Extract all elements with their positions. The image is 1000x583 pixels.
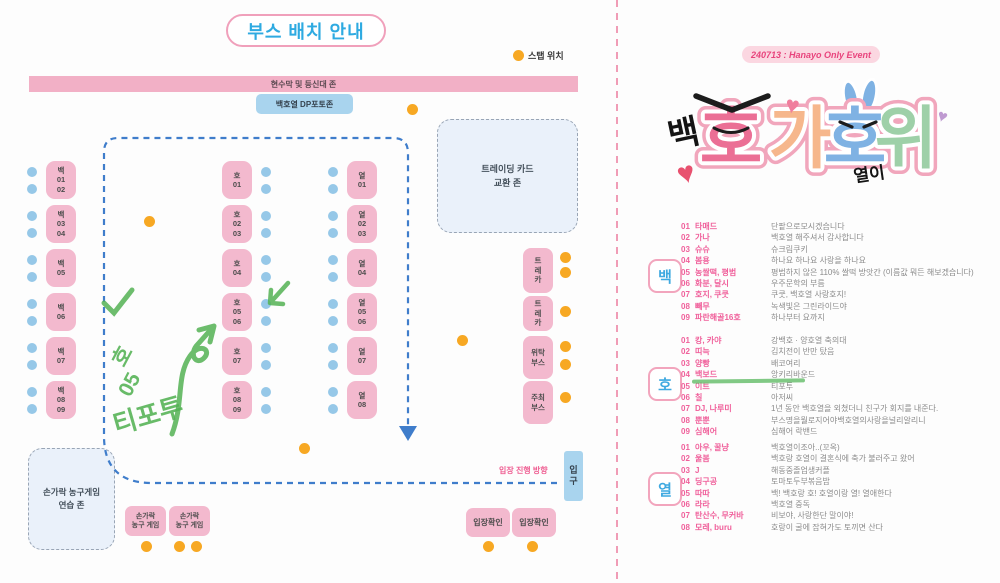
entry-check-booth-2: 입장확인 <box>512 508 556 537</box>
attendee-dots <box>328 343 338 370</box>
booth-box: 백 06 <box>46 293 76 331</box>
logo-outline: 위 <box>875 101 938 177</box>
booth-description: 슈크림쿠키 <box>771 244 808 255</box>
attendee-dots <box>27 255 37 282</box>
staff-dot <box>299 443 310 454</box>
booth-description: 우주문학의 부름 <box>771 278 825 289</box>
attendee-dot <box>328 316 338 326</box>
attendee-dot <box>328 228 338 238</box>
entry-path-arrowhead-icon <box>399 426 417 441</box>
baek-booth-column: 백 01 02백 03 04백 05백 06백 07백 08 09 <box>27 161 76 425</box>
booth-number: 01 <box>681 335 695 346</box>
staff-dot <box>560 252 571 263</box>
ho-booth-column: 호 01호 02 03호 04호 05 06호 07호 08 09 <box>222 161 271 425</box>
marker-annotation-tipotu: 티포투 <box>109 391 186 440</box>
attendee-dot <box>328 167 338 177</box>
logo-char-ho-tiger: 호 <box>700 101 763 177</box>
booth-list-row: 06화분, 달시우주문학의 부름 <box>681 278 1000 289</box>
booth-number: 03 <box>681 244 695 255</box>
attendee-dots <box>328 299 338 326</box>
logo-suffix-yeoli: 열이 <box>852 163 886 186</box>
booth-list-row: 02울봄백호랑 호열이 결혼식에 축가 불러주고 왔어 <box>681 453 1000 464</box>
booth-list-row: 05농쌀떡, 평범평범하지 않은 110% 쌀떡 방앗간 (이름값 뭐든 해보겠… <box>681 267 1000 278</box>
attendee-dot <box>328 272 338 282</box>
booth-description: 호랑이 굴에 잡혀가도 토끼면 산다 <box>771 522 883 533</box>
booth-list-row: 06라라백호열 중독 <box>681 499 1000 510</box>
booth-layout-poster: 부스 배치 안내 스탭 위치 현수막 및 등신대 존 백호열 DP포토존 트레이… <box>0 0 1000 583</box>
booth-number: 08 <box>681 522 695 533</box>
booth-number: 02 <box>681 232 695 243</box>
staff-dot <box>407 104 418 115</box>
booth-name: 울봄 <box>695 453 771 464</box>
booth-row: 호 08 09 <box>222 381 271 419</box>
staff-dot <box>141 541 152 552</box>
booth-name: 모레, buru <box>695 522 771 533</box>
attendee-dot <box>27 316 37 326</box>
staff-dot <box>483 541 494 552</box>
booth-list-row: 04딩구공토마토두부볶음밥 <box>681 476 1000 487</box>
booth-number: 08 <box>681 415 695 426</box>
booth-name: 양빵 <box>695 358 771 369</box>
booth-row: 백 08 09 <box>27 381 76 419</box>
booth-row: 열 02 03 <box>328 205 377 243</box>
booth-row: 열 07 <box>328 337 377 375</box>
booth-list-row: 03J해동중졸업생커플 <box>681 465 1000 476</box>
booth-description: 백호열 중독 <box>771 499 810 510</box>
booth-name: 봄용 <box>695 255 771 266</box>
booth-number: 06 <box>681 278 695 289</box>
booth-name: 띠늑 <box>695 346 771 357</box>
attendee-dot <box>27 343 37 353</box>
booth-description: 하나요 하나요 사랑을 하나요 <box>771 255 866 266</box>
event-logo: 호 가 호 위 호 가 호 위 호 가 호 위 백 열이 ♥ ♥ <box>648 70 968 195</box>
booth-description: 티포투 <box>771 381 793 392</box>
booth-name: 화분, 달시 <box>695 278 771 289</box>
logo-outline: 가 <box>769 101 832 177</box>
booth-name: 슈슈 <box>695 244 771 255</box>
booth-description: 비보야, 사랑한단 말이야! <box>771 510 854 521</box>
attendee-dot <box>27 387 37 397</box>
attendee-dot <box>27 360 37 370</box>
booth-description: 단팥으로모시겠습니다 <box>771 221 845 232</box>
staff-dot <box>560 392 571 403</box>
booth-list-row: 02가나백호열 해주셔서 감사합니다 <box>681 232 1000 243</box>
booth-number: 05 <box>681 488 695 499</box>
logo-outline: 호 <box>700 101 763 177</box>
attendee-dot <box>261 272 271 282</box>
attendee-dot <box>328 387 338 397</box>
trading-card-zone: 트레이딩 카드 교환 존 <box>437 119 578 233</box>
attendee-dot <box>27 211 37 221</box>
booth-description: 쿠쿳, 백호열 사랑호지! <box>771 289 846 300</box>
booth-box: 호 05 06 <box>222 293 252 331</box>
staff-dot <box>191 541 202 552</box>
attendee-dot <box>27 167 37 177</box>
logo-prefix-baek: 백 <box>664 112 702 156</box>
attendee-dot <box>261 299 271 309</box>
staff-dot <box>174 541 185 552</box>
attendee-dots <box>27 343 37 370</box>
booth-box: 백 07 <box>46 337 76 375</box>
attendee-dot <box>328 255 338 265</box>
booth-number: 04 <box>681 255 695 266</box>
booth-row: 열 08 <box>328 381 377 419</box>
booth-name: 호지, 쿠쿳 <box>695 289 771 300</box>
event-date-pill: 240713 : Hanayo Only Event <box>742 46 880 63</box>
booth-description: 해동중졸업생커플 <box>771 465 830 476</box>
finger-basketball-booth-1: 손가락 농구 게임 <box>125 506 166 536</box>
booth-list-row: 07DJ, 나루미1년 동안 백호열을 외쳤더니 친구가 회지를 내준다. <box>681 403 1000 414</box>
attendee-dot <box>27 228 37 238</box>
booth-row: 호 02 03 <box>222 205 271 243</box>
attendee-dot <box>328 343 338 353</box>
booth-list-row: 08모레, buru호랑이 굴에 잡혀가도 토끼면 산다 <box>681 522 1000 533</box>
tiger-eyebrow-icon <box>696 96 768 110</box>
booth-row: 열 01 <box>328 161 377 199</box>
booth-list-row: 08뿐뿐부스명을뭘로지어야백호열의사랑을널리알리니 <box>681 415 1000 426</box>
attendee-dot <box>261 316 271 326</box>
booth-list-row: 06칠아저씨 <box>681 392 1000 403</box>
booth-row: 열 05 06 <box>328 293 377 331</box>
dp-photo-zone: 백호열 DP포토존 <box>256 94 353 114</box>
booth-list-row: 01아우, 꿀냥백호열이조아..(꼬옥) <box>681 442 1000 453</box>
attendee-dot <box>328 299 338 309</box>
booth-description: 백호열이조아..(꼬옥) <box>771 442 840 453</box>
attendee-dot <box>261 387 271 397</box>
attendee-dot <box>27 404 37 414</box>
booth-box: 열 01 <box>347 161 377 199</box>
rabbit-eyes-icon <box>840 122 876 127</box>
trading-card-booth-2: 트 레 카 <box>523 296 553 331</box>
attendee-dots <box>328 255 338 282</box>
logo-outline: 위 <box>875 101 938 177</box>
staff-dot <box>144 216 155 227</box>
booth-list-row: 09심해어심해어 락밴드 <box>681 426 1000 437</box>
basketball-practice-zone: 손가락 농구게임 연습 존 <box>28 448 115 550</box>
entry-direction-label: 입장 진행 방향 <box>499 465 548 476</box>
staff-dot <box>560 267 571 278</box>
consignment-booth: 위탁 부스 <box>523 336 553 379</box>
booth-box: 호 07 <box>222 337 252 375</box>
booth-number: 01 <box>681 442 695 453</box>
booth-description: 아저씨 <box>771 392 793 403</box>
heart-icon: ♥ <box>783 91 802 120</box>
booth-number: 09 <box>681 426 695 437</box>
attendee-dot <box>328 404 338 414</box>
banner-zone: 현수막 및 등신대 존 <box>29 76 578 92</box>
booth-description: 김치전이 반만 탔음 <box>771 346 834 357</box>
attendee-dots <box>27 211 37 238</box>
attendee-dot <box>328 360 338 370</box>
booth-number: 09 <box>681 312 695 323</box>
booth-list-ho: 01캉, 카야강백호 · 양호열 축의대02띠늑김치전이 반만 탔음03양빵배코… <box>681 335 1000 438</box>
booth-description: 하나부터 요까지 <box>771 312 825 323</box>
booth-list-row: 07호지, 쿠쿳쿠쿳, 백호열 사랑호지! <box>681 289 1000 300</box>
booth-name: 심해어 <box>695 426 771 437</box>
booth-row: 백 01 02 <box>27 161 76 199</box>
booth-name: 따따 <box>695 488 771 499</box>
trading-card-booth-1: 트 레 카 <box>523 248 553 293</box>
booth-list-row: 04봄용하나요 하나요 사랑을 하나요 <box>681 255 1000 266</box>
attendee-dots <box>27 299 37 326</box>
booth-list-baek: 01타매드단팥으로모시겠습니다02가나백호열 해주셔서 감사합니다03슈슈슈크림… <box>681 221 1000 324</box>
attendee-dot <box>261 360 271 370</box>
staff-dot <box>560 359 571 370</box>
booth-name: 타매드 <box>695 221 771 232</box>
booth-list-row: 07탄산수, 무커바비보야, 사랑한단 말이야! <box>681 510 1000 521</box>
booth-number: 02 <box>681 346 695 357</box>
booth-row: 호 05 06 <box>222 293 271 331</box>
yeol-booth-column: 열 01열 02 03열 04열 05 06열 07열 08 <box>328 161 377 425</box>
logo-char-wi: 위 <box>875 101 938 177</box>
booth-name: 칠 <box>695 392 771 403</box>
booth-list-row: 01타매드단팥으로모시겠습니다 <box>681 221 1000 232</box>
booth-description: 1년 동안 백호열을 외쳤더니 친구가 회지를 내준다. <box>771 403 938 414</box>
booth-row: 백 06 <box>27 293 76 331</box>
entry-check-booth-1: 입장확인 <box>466 508 510 537</box>
booth-list-row: 03양빵배코여리 <box>681 358 1000 369</box>
attendee-dot <box>328 211 338 221</box>
booth-list-row: 05따따백! 백호랑 호! 호열이랑 열! 열애한다 <box>681 488 1000 499</box>
organizer-booth: 주최 부스 <box>523 381 553 424</box>
booth-list-row: 02띠늑김치전이 반만 탔음 <box>681 346 1000 357</box>
booth-box: 열 04 <box>347 249 377 287</box>
booth-box: 백 05 <box>46 249 76 287</box>
booth-name: DJ, 나루미 <box>695 403 771 414</box>
staff-legend-label: 스탭 위치 <box>528 49 564 62</box>
booth-box: 호 01 <box>222 161 252 199</box>
booth-list-row: 09파란해골16호하나부터 요까지 <box>681 312 1000 323</box>
booth-row: 호 04 <box>222 249 271 287</box>
attendee-dot <box>27 184 37 194</box>
section-badge-ho: 호 <box>648 367 682 401</box>
booth-name: 탄산수, 무커바 <box>695 510 771 521</box>
attendee-dots <box>261 167 271 194</box>
staff-legend: 스탭 위치 <box>513 49 564 62</box>
booth-name: 뿐뿐 <box>695 415 771 426</box>
booth-row: 백 07 <box>27 337 76 375</box>
booth-number: 03 <box>681 465 695 476</box>
marker-annotation-05: 05 <box>114 369 145 401</box>
booth-description: 강백호 · 양호열 축의대 <box>771 335 847 346</box>
staff-dot-icon <box>513 50 524 61</box>
rabbit-ear-icon <box>859 78 880 114</box>
attendee-dots <box>328 387 338 414</box>
logo-outline: 호 <box>824 101 887 177</box>
section-badge-yeol: 열 <box>648 472 682 506</box>
booth-description: 토마토두부볶음밥 <box>771 476 830 487</box>
attendee-dot <box>261 167 271 177</box>
heart-icon: ♥ <box>935 106 950 127</box>
rabbit-ear-icon <box>841 80 862 116</box>
booth-name: 딩구공 <box>695 476 771 487</box>
booth-description: 백호열 해주셔서 감사합니다 <box>771 232 864 243</box>
booth-number: 03 <box>681 358 695 369</box>
booth-row: 호 07 <box>222 337 271 375</box>
booth-box: 열 07 <box>347 337 377 375</box>
attendee-dot <box>261 211 271 221</box>
booth-name: 가나 <box>695 232 771 243</box>
logo-outline: 가 <box>769 101 832 177</box>
page-title: 부스 배치 안내 <box>226 14 386 47</box>
booth-number: 08 <box>681 301 695 312</box>
booth-box: 호 04 <box>222 249 252 287</box>
attendee-dots <box>261 387 271 414</box>
attendee-dot <box>261 343 271 353</box>
page-divider-dashed <box>616 0 618 583</box>
booth-number: 06 <box>681 392 695 403</box>
booth-description: 심해어 락밴드 <box>771 426 817 437</box>
booth-box: 백 08 09 <box>46 381 76 419</box>
booth-name: 캉, 카야 <box>695 335 771 346</box>
booth-description: 배코여리 <box>771 358 800 369</box>
booth-row: 열 04 <box>328 249 377 287</box>
booth-name: 라라 <box>695 499 771 510</box>
booth-description: 녹색빛은 그린라이드야 <box>771 301 847 312</box>
entrance-box: 입 구 <box>564 451 583 501</box>
booth-description: 평범하지 않은 110% 쌀떡 방앗간 (이름값 뭐든 해보겠습니다) <box>771 267 974 278</box>
attendee-dot <box>27 299 37 309</box>
booth-row: 호 01 <box>222 161 271 199</box>
attendee-dot <box>328 184 338 194</box>
booth-description: 백호랑 호열이 결혼식에 축가 불러주고 왔어 <box>771 453 915 464</box>
finger-basketball-booth-2: 손가락 농구 게임 <box>169 506 210 536</box>
booth-box: 백 01 02 <box>46 161 76 199</box>
booth-row: 백 03 04 <box>27 205 76 243</box>
attendee-dot <box>261 228 271 238</box>
attendee-dots <box>27 167 37 194</box>
booth-number: 04 <box>681 476 695 487</box>
booth-number: 07 <box>681 289 695 300</box>
booth-number: 01 <box>681 221 695 232</box>
attendee-dot <box>27 255 37 265</box>
staff-dot <box>457 335 468 346</box>
booth-box: 백 03 04 <box>46 205 76 243</box>
booth-description: 부스명을뭘로지어야백호열의사랑을널리알리니 <box>771 415 926 426</box>
attendee-dots <box>328 167 338 194</box>
staff-dot <box>560 341 571 352</box>
booth-list-yeol: 01아우, 꿀냥백호열이조아..(꼬옥)02울봄백호랑 호열이 결혼식에 축가 … <box>681 442 1000 533</box>
marker-checkmark-icon <box>104 290 132 313</box>
booth-list-row: 08빼무녹색빛은 그린라이드야 <box>681 301 1000 312</box>
marker-arrow-icon <box>270 283 288 304</box>
booth-number: 02 <box>681 453 695 464</box>
logo-outline: 호 <box>824 101 887 177</box>
section-badge-baek: 백 <box>648 259 682 293</box>
booth-box: 호 02 03 <box>222 205 252 243</box>
logo-char-ga: 가 <box>769 101 832 177</box>
attendee-dots <box>261 299 271 326</box>
booth-number: 05 <box>681 267 695 278</box>
tiger-smile-icon <box>714 128 748 133</box>
booth-box: 열 05 06 <box>347 293 377 331</box>
attendee-dots <box>27 387 37 414</box>
booth-name: 빼무 <box>695 301 771 312</box>
booth-box: 열 08 <box>347 381 377 419</box>
booth-number: 07 <box>681 510 695 521</box>
booth-name: J <box>695 465 771 476</box>
attendee-dot <box>261 404 271 414</box>
booth-list-row: 01캉, 카야강백호 · 양호열 축의대 <box>681 335 1000 346</box>
heart-icon: ♥ <box>673 155 699 191</box>
staff-dot <box>560 306 571 317</box>
attendee-dots <box>261 255 271 282</box>
booth-list-row: 03슈슈슈크림쿠키 <box>681 244 1000 255</box>
booth-description: 백! 백호랑 호! 호열이랑 열! 열애한다 <box>771 488 892 499</box>
booth-number: 07 <box>681 403 695 414</box>
booth-box: 열 02 03 <box>347 205 377 243</box>
logo-char-ho-rabbit: 호 <box>824 101 887 177</box>
booth-name: 농쌀떡, 평범 <box>695 267 771 278</box>
attendee-dot <box>27 272 37 282</box>
marker-curved-arrow-icon <box>172 326 214 434</box>
booth-box: 호 08 09 <box>222 381 252 419</box>
logo-outline: 호 <box>700 101 763 177</box>
booth-number: 06 <box>681 499 695 510</box>
attendee-dots <box>328 211 338 238</box>
marker-annotation-ho: 호 <box>108 342 137 370</box>
booth-row: 백 05 <box>27 249 76 287</box>
staff-dot <box>527 541 538 552</box>
attendee-dots <box>261 343 271 370</box>
booth-name: 아우, 꿀냥 <box>695 442 771 453</box>
attendee-dot <box>261 255 271 265</box>
attendee-dot <box>261 184 271 194</box>
attendee-dots <box>261 211 271 238</box>
booth-name: 파란해골16호 <box>695 312 771 323</box>
